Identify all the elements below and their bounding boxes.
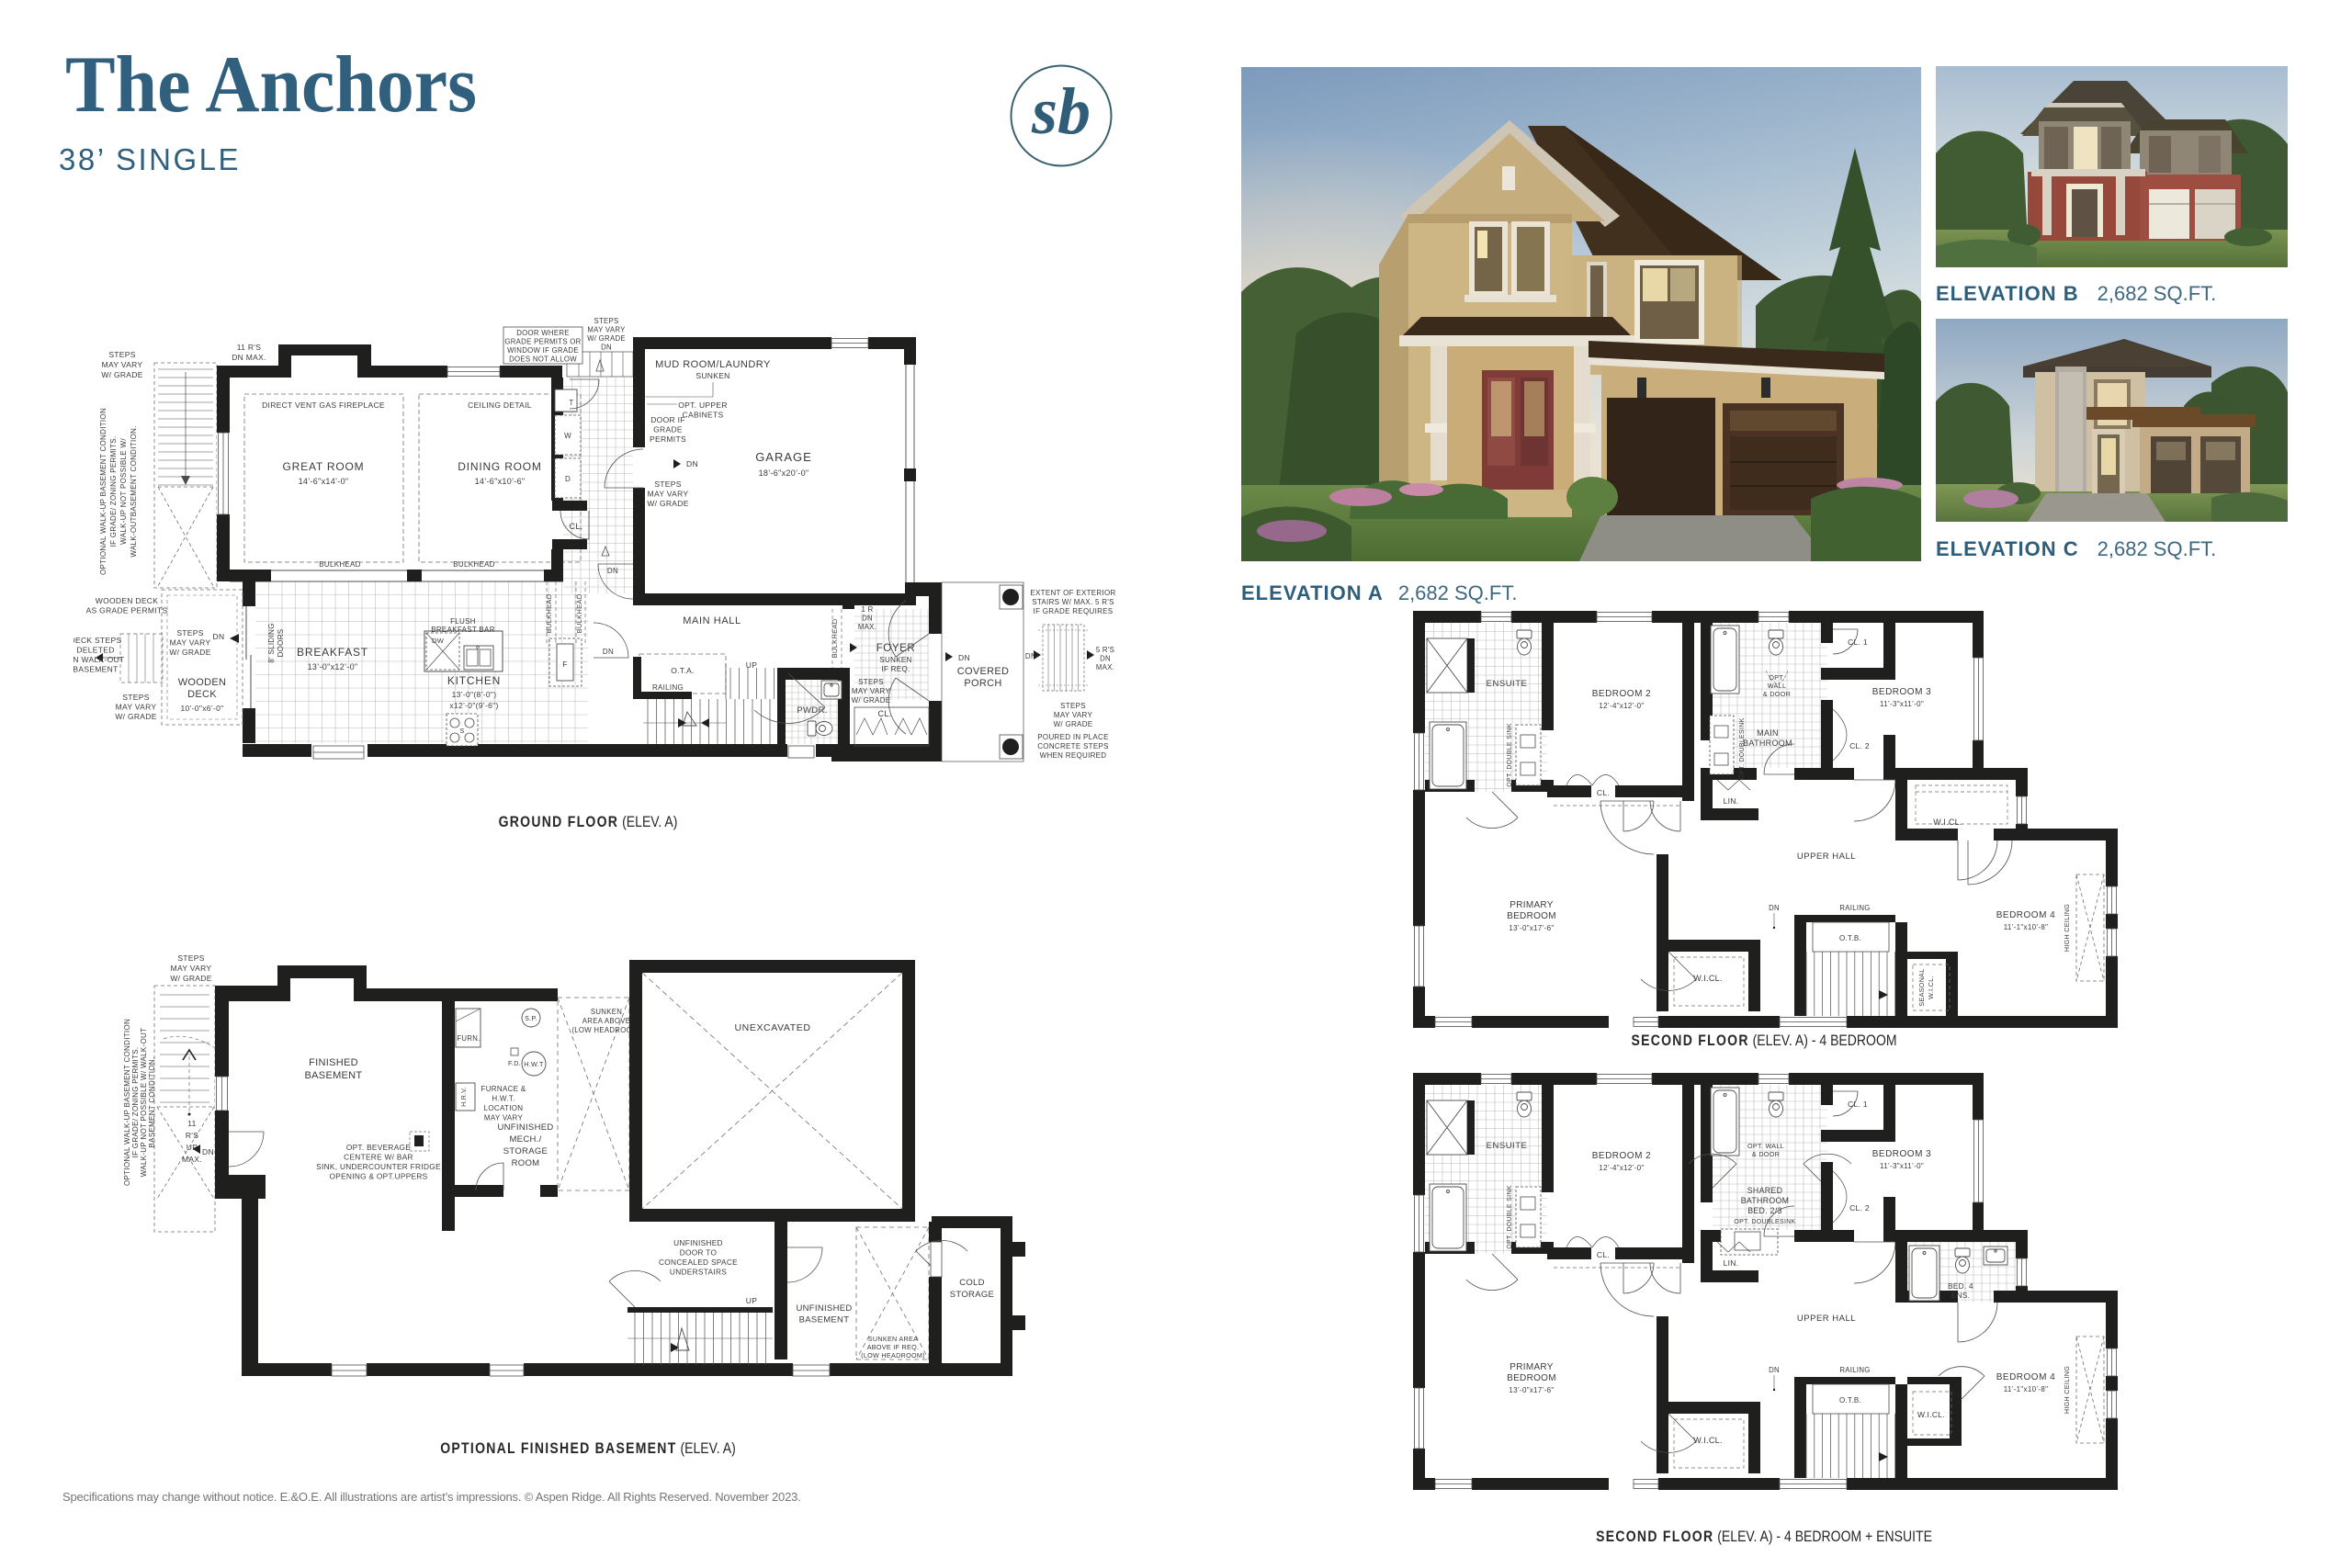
svg-text:10’-0"x6’-0": 10’-0"x6’-0"	[181, 704, 224, 713]
svg-text:STEPS: STEPS	[122, 693, 149, 702]
svg-text:BREAKFAST: BREAKFAST	[297, 646, 368, 659]
svg-text:FLUSH: FLUSH	[450, 617, 476, 626]
svg-text:CONCEALED SPACE: CONCEALED SPACE	[659, 1258, 738, 1267]
svg-text:DECK STEPS: DECK STEPS	[73, 636, 121, 645]
svg-text:IF GRADE REQUIRES: IF GRADE REQUIRES	[1034, 607, 1114, 615]
svg-text:WOODEN DECK: WOODEN DECK	[96, 596, 158, 605]
svg-text:sb: sb	[1031, 74, 1091, 148]
svg-text:W/ GRADE: W/ GRADE	[852, 696, 891, 705]
svg-text:CL.: CL.	[878, 709, 892, 718]
svg-text:GREAT ROOM: GREAT ROOM	[283, 460, 365, 473]
svg-text:ROOM: ROOM	[512, 1158, 540, 1168]
svg-text:1 R: 1 R	[861, 605, 873, 614]
svg-text:STEPS: STEPS	[1060, 702, 1086, 710]
svg-text:DW: DW	[432, 637, 445, 645]
svg-text:UPPER HALL: UPPER HALL	[1797, 852, 1856, 862]
svg-text:S: S	[459, 727, 464, 735]
svg-text:KITCHEN: KITCHEN	[447, 674, 501, 687]
svg-text:DOES NOT ALLOW: DOES NOT ALLOW	[509, 355, 577, 364]
svg-text:11’-1"x10’-8": 11’-1"x10’-8"	[2004, 1385, 2049, 1393]
svg-text:STEPS: STEPS	[858, 678, 884, 686]
svg-text:OPT. WALL: OPT. WALL	[1747, 1142, 1784, 1150]
svg-text:MAY VARY: MAY VARY	[116, 703, 157, 712]
svg-text:CABINETS: CABINETS	[683, 411, 724, 420]
svg-text:STEPS: STEPS	[654, 479, 681, 489]
svg-text:W.I.CL.: W.I.CL.	[1927, 976, 1935, 999]
svg-text:CL. 1: CL. 1	[1848, 1100, 1868, 1109]
svg-text:PWDR.: PWDR.	[797, 705, 827, 716]
svg-text:F: F	[562, 660, 568, 669]
svg-text:(LOW HEADROOM): (LOW HEADROOM)	[861, 1351, 925, 1359]
svg-text:BEDROOM: BEDROOM	[1507, 1373, 1556, 1383]
svg-text:BEDROOM 3: BEDROOM 3	[1872, 1149, 1932, 1159]
svg-text:LIN.: LIN.	[1724, 796, 1739, 806]
svg-text:BULKHEAD: BULKHEAD	[831, 618, 839, 658]
svg-text:FURN.: FURN.	[457, 1034, 480, 1043]
svg-text:STEPS: STEPS	[176, 628, 203, 637]
svg-text:OPT.: OPT.	[1769, 673, 1784, 682]
svg-text:W/ GRADE: W/ GRADE	[587, 334, 626, 343]
svg-text:BEDROOM 4: BEDROOM 4	[1996, 910, 2056, 920]
svg-text:DN: DN	[1769, 904, 1780, 912]
svg-text:AREA ABOVE: AREA ABOVE	[582, 1017, 630, 1025]
svg-text:O.T.B.: O.T.B.	[1839, 934, 1861, 942]
svg-text:CL. 2: CL. 2	[1849, 741, 1870, 750]
svg-text:F.D.: F.D.	[508, 1059, 521, 1067]
svg-text:ENS.: ENS.	[1951, 1292, 1970, 1300]
svg-text:H.R.V.: H.R.V.	[461, 1087, 468, 1107]
svg-text:DINING ROOM: DINING ROOM	[458, 460, 541, 473]
svg-text:OPTIONAL WALK-UP BASEMENT COND: OPTIONAL WALK-UP BASEMENT CONDITION	[99, 408, 107, 575]
svg-text:DN: DN	[958, 653, 970, 662]
svg-text:18’-6"x20’-0": 18’-6"x20’-0"	[759, 468, 809, 478]
svg-text:GRADE PERMITS OR: GRADE PERMITS OR	[504, 338, 581, 346]
svg-text:IF GRADE/ ZONING PERMITS.: IF GRADE/ ZONING PERMITS.	[131, 1047, 140, 1158]
svg-text:MAIN HALL: MAIN HALL	[683, 615, 741, 626]
svg-text:GRADE: GRADE	[653, 425, 683, 434]
svg-text:COLD: COLD	[959, 1278, 985, 1288]
svg-text:5 R'S: 5 R'S	[1096, 646, 1114, 654]
svg-text:13’-0"x12’-0": 13’-0"x12’-0"	[308, 662, 358, 671]
svg-text:UNFINISHED: UNFINISHED	[673, 1238, 723, 1247]
svg-text:W/ GRADE: W/ GRADE	[169, 648, 210, 657]
svg-text:R'S: R'S	[186, 1131, 198, 1140]
svg-text:W.I.CL.: W.I.CL.	[1933, 818, 1962, 827]
svg-text:SUNKEN AREA: SUNKEN AREA	[868, 1335, 918, 1343]
svg-text:14’-6"x10’-6": 14’-6"x10’-6"	[475, 477, 526, 486]
svg-text:D: D	[565, 475, 571, 483]
svg-text:11’-3"x11’-0": 11’-3"x11’-0"	[1880, 1162, 1924, 1170]
svg-text:CL. 1: CL. 1	[1848, 637, 1868, 647]
svg-text:W/ GRADE: W/ GRADE	[101, 370, 142, 379]
svg-text:OPT. BEVERAGE: OPT. BEVERAGE	[346, 1143, 411, 1152]
svg-text:CL.: CL.	[1597, 1250, 1610, 1259]
svg-text:W/ GRADE: W/ GRADE	[170, 974, 211, 983]
svg-text:ABOVE IF REQ.: ABOVE IF REQ.	[867, 1343, 920, 1351]
svg-text:PORCH: PORCH	[964, 678, 1001, 689]
svg-text:W.I.CL.: W.I.CL.	[1917, 1410, 1945, 1419]
svg-text:T: T	[569, 399, 573, 407]
svg-text:ON WALK-OUT: ON WALK-OUT	[73, 655, 124, 664]
svg-text:IF REQ.: IF REQ.	[882, 665, 910, 673]
svg-text:11’-1"x10’-8": 11’-1"x10’-8"	[2004, 923, 2049, 931]
svg-text:CONCRETE STEPS: CONCRETE STEPS	[1037, 742, 1109, 750]
svg-text:RAILING: RAILING	[1839, 904, 1870, 912]
svg-text:OPENING & OPT.UPPERS: OPENING & OPT.UPPERS	[330, 1172, 428, 1181]
svg-text:DN: DN	[607, 567, 618, 575]
svg-text:WOODEN: WOODEN	[178, 677, 227, 688]
svg-text:OPT. DOUBLESINK: OPT. DOUBLESINK	[1739, 717, 1746, 779]
svg-text:MAY VARY: MAY VARY	[1054, 711, 1093, 719]
svg-text:BULKHEAD: BULKHEAD	[319, 560, 361, 569]
svg-text:SHARED: SHARED	[1747, 1186, 1782, 1195]
svg-text:SEASONAL: SEASONAL	[1917, 968, 1926, 1006]
svg-text:SINK, UNDERCOUNTER FRIDGE: SINK, UNDERCOUNTER FRIDGE	[316, 1162, 441, 1171]
svg-text:UP: UP	[746, 1296, 757, 1305]
svg-text:ENSUITE: ENSUITE	[1487, 1141, 1528, 1151]
svg-text:DOOR TO: DOOR TO	[680, 1248, 718, 1258]
svg-text:MUD ROOM/LAUNDRY: MUD ROOM/LAUNDRY	[655, 359, 771, 370]
svg-text:8' SLIDING: 8' SLIDING	[267, 623, 276, 662]
svg-text:W.I.CL.: W.I.CL.	[1693, 1436, 1723, 1445]
svg-text:WALK-OUTBASEMENT CONDITION.: WALK-OUTBASEMENT CONDITION.	[130, 425, 138, 557]
svg-text:MAX.: MAX.	[182, 1155, 202, 1164]
svg-text:MAY VARY: MAY VARY	[102, 360, 143, 369]
svg-text:POURED IN PLACE: POURED IN PLACE	[1037, 733, 1108, 741]
svg-text:DOOR IF: DOOR IF	[650, 415, 685, 424]
svg-text:OPT. DOUBLE SINK: OPT. DOUBLE SINK	[1507, 1185, 1513, 1248]
svg-text:PERMITS: PERMITS	[650, 434, 686, 444]
svg-text:DN: DN	[213, 632, 225, 641]
svg-text:RAILING: RAILING	[1839, 1366, 1870, 1374]
svg-text:SUNKEN: SUNKEN	[879, 656, 911, 664]
svg-text:DN MAX.: DN MAX.	[232, 353, 266, 362]
svg-text:12’-4"x12’-0": 12’-4"x12’-0"	[1599, 1164, 1644, 1172]
svg-text:UNDERSTAIRS: UNDERSTAIRS	[670, 1268, 727, 1277]
svg-text:CEILING DETAIL: CEILING DETAIL	[468, 400, 532, 410]
svg-text:BED. 2/3: BED. 2/3	[1747, 1206, 1782, 1215]
svg-text:H.W.T.: H.W.T.	[492, 1095, 514, 1103]
svg-text:WALL: WALL	[1768, 682, 1787, 690]
svg-text:BULKHEAD: BULKHEAD	[575, 593, 583, 633]
svg-text:CENTERE W/ BAR: CENTERE W/ BAR	[344, 1153, 413, 1162]
svg-text:13’-0"x17’-6": 13’-0"x17’-6"	[1509, 1386, 1554, 1394]
svg-text:ENSUITE: ENSUITE	[1487, 679, 1528, 689]
svg-text:DN: DN	[862, 615, 873, 623]
svg-text:BEDROOM 2: BEDROOM 2	[1592, 689, 1652, 699]
svg-text:O.T.A.: O.T.A.	[671, 666, 694, 675]
svg-text:MAY VARY: MAY VARY	[484, 1114, 524, 1122]
svg-text:SUNKEN: SUNKEN	[695, 371, 729, 380]
svg-text:DN: DN	[1100, 655, 1111, 663]
svg-text:O.T.B.: O.T.B.	[1839, 1396, 1861, 1404]
svg-text:11 R'S: 11 R'S	[237, 343, 261, 352]
svg-text:BULKHEAD: BULKHEAD	[545, 593, 553, 633]
svg-text:11: 11	[187, 1119, 196, 1128]
svg-text:UP: UP	[746, 660, 757, 670]
svg-text:PRIMARY: PRIMARY	[1510, 900, 1554, 910]
svg-text:BULKHEAD: BULKHEAD	[453, 560, 495, 569]
svg-text:W.I.CL.: W.I.CL.	[1693, 974, 1723, 983]
svg-text:FINISHED: FINISHED	[309, 1057, 358, 1068]
svg-text:LOCATION: LOCATION	[484, 1104, 524, 1112]
svg-text:WINDOW IF GRADE: WINDOW IF GRADE	[507, 346, 579, 355]
svg-text:DN: DN	[1769, 1366, 1780, 1374]
svg-text:MAIN: MAIN	[1757, 728, 1779, 738]
svg-text:DECK: DECK	[187, 689, 217, 700]
svg-text:UNEXCAVATED: UNEXCAVATED	[734, 1022, 810, 1033]
svg-text:MAX.: MAX.	[858, 623, 876, 631]
svg-text:DN: DN	[202, 1147, 214, 1156]
svg-text:MAX.: MAX.	[1096, 663, 1114, 671]
svg-text:MAY VARY: MAY VARY	[170, 638, 211, 648]
svg-text:PRIMARY: PRIMARY	[1510, 1362, 1554, 1372]
svg-text:BASEMENT: BASEMENT	[305, 1070, 363, 1081]
svg-text:FURNACE &: FURNACE &	[481, 1085, 526, 1093]
svg-text:& DOOR: & DOOR	[1763, 690, 1791, 698]
svg-text:13’-0"(8’-0"): 13’-0"(8’-0")	[452, 690, 497, 699]
svg-text:GARAGE: GARAGE	[755, 450, 812, 464]
svg-text:STEPS: STEPS	[177, 953, 204, 963]
svg-text:HIGH CEILING: HIGH CEILING	[2063, 1366, 2071, 1414]
svg-text:COVERED: COVERED	[957, 666, 1010, 677]
svg-text:DN: DN	[686, 459, 698, 468]
svg-text:EXTENT OF EXTERIOR: EXTENT OF EXTERIOR	[1030, 589, 1115, 597]
svg-text:14’-6"x14’-0": 14’-6"x14’-0"	[299, 477, 349, 486]
svg-text:DIRECT VENT GAS FIREPLACE: DIRECT VENT GAS FIREPLACE	[262, 400, 385, 410]
svg-text:WHEN REQUIRED: WHEN REQUIRED	[1040, 751, 1107, 760]
svg-text:& DOOR: & DOOR	[1752, 1150, 1780, 1158]
svg-text:CL.: CL.	[570, 522, 583, 531]
svg-text:OPT. UPPER: OPT. UPPER	[678, 400, 728, 410]
svg-text:BEDROOM 2: BEDROOM 2	[1592, 1151, 1652, 1161]
svg-text:BASEMENT CONDITION.: BASEMENT CONDITION.	[148, 1057, 156, 1148]
svg-text:OPTIONAL WALK-UP BASEMENT COND: OPTIONAL WALK-UP BASEMENT CONDITION	[123, 1019, 131, 1186]
svg-text:W/ GRADE: W/ GRADE	[115, 712, 156, 721]
svg-text:BEDROOM 4: BEDROOM 4	[1996, 1372, 2056, 1382]
svg-text:CL.: CL.	[1597, 788, 1610, 797]
svg-text:CL. 2: CL. 2	[1849, 1203, 1870, 1213]
svg-text:STORAGE: STORAGE	[950, 1290, 994, 1300]
svg-text:11’-3"x11’-0": 11’-3"x11’-0"	[1880, 700, 1924, 708]
svg-text:STEPS: STEPS	[594, 317, 618, 325]
svg-text:BEDROOM 3: BEDROOM 3	[1872, 687, 1932, 697]
svg-text:MAY VARY: MAY VARY	[587, 326, 626, 334]
svg-text:STORAGE: STORAGE	[503, 1146, 548, 1156]
svg-text:BASEMENT: BASEMENT	[799, 1315, 850, 1325]
svg-text:12’-4"x12’-0": 12’-4"x12’-0"	[1599, 702, 1644, 710]
svg-text:W/ GRADE: W/ GRADE	[647, 499, 688, 508]
svg-text:HIGH CEILING: HIGH CEILING	[2063, 904, 2071, 952]
svg-text:BATHROOM: BATHROOM	[1743, 739, 1792, 748]
svg-text:STAIRS W/ MAX. 5 R'S: STAIRS W/ MAX. 5 R'S	[1032, 598, 1114, 606]
svg-text:DN: DN	[603, 648, 614, 656]
svg-text:LIN.: LIN.	[1724, 1258, 1739, 1268]
svg-text:BED. 4: BED. 4	[1948, 1282, 1973, 1291]
svg-text:WALK-UP NOT POSSIBLE W/: WALK-UP NOT POSSIBLE W/	[119, 438, 128, 545]
svg-text:MECH./: MECH./	[509, 1134, 541, 1145]
svg-text:BASEMENT: BASEMENT	[73, 665, 119, 674]
svg-text:UNFINISHED: UNFINISHED	[796, 1303, 852, 1314]
svg-text:OPT. DOUBLE SINK: OPT. DOUBLE SINK	[1507, 723, 1513, 786]
svg-text:BEDROOM: BEDROOM	[1507, 911, 1556, 921]
svg-text:H.W.T: H.W.T	[524, 1060, 544, 1068]
svg-text:13’-0"x17’-6": 13’-0"x17’-6"	[1509, 924, 1554, 932]
svg-text:MAY VARY: MAY VARY	[648, 490, 689, 499]
svg-text:BATHROOM: BATHROOM	[1741, 1196, 1790, 1205]
svg-text:W/ GRADE: W/ GRADE	[1054, 720, 1093, 728]
svg-text:x12’-0"(9’-6"): x12’-0"(9’-6")	[449, 701, 498, 710]
svg-text:UPPER HALL: UPPER HALL	[1797, 1314, 1856, 1324]
svg-text:AS GRADE PERMITS: AS GRADE PERMITS	[86, 606, 168, 615]
svg-text:DELETED: DELETED	[76, 646, 114, 655]
svg-text:WALK-UP NOT POSSIBLE W/ WALK-O: WALK-UP NOT POSSIBLE W/ WALK-OUT	[140, 1028, 148, 1178]
svg-text:MAY VARY: MAY VARY	[852, 687, 891, 695]
svg-text:RAILING: RAILING	[652, 683, 684, 692]
svg-text:STEPS: STEPS	[108, 350, 135, 359]
svg-text:DN: DN	[601, 344, 612, 352]
svg-text:DOOR WHERE: DOOR WHERE	[516, 329, 570, 337]
svg-text:S.P.: S.P.	[525, 1014, 537, 1022]
svg-text:DOORS: DOORS	[277, 629, 285, 658]
svg-text:SUNKEN: SUNKEN	[591, 1008, 622, 1016]
svg-text:FOYER: FOYER	[876, 643, 916, 654]
svg-text:MAY VARY: MAY VARY	[171, 964, 212, 973]
svg-text:OPT. DOUBLESINK: OPT. DOUBLESINK	[1734, 1219, 1795, 1225]
svg-text:W: W	[564, 432, 571, 440]
svg-text:UNFINISHED: UNFINISHED	[497, 1122, 553, 1133]
svg-text:IF GRADE/ ZONING PERMITS.: IF GRADE/ ZONING PERMITS.	[109, 436, 118, 547]
